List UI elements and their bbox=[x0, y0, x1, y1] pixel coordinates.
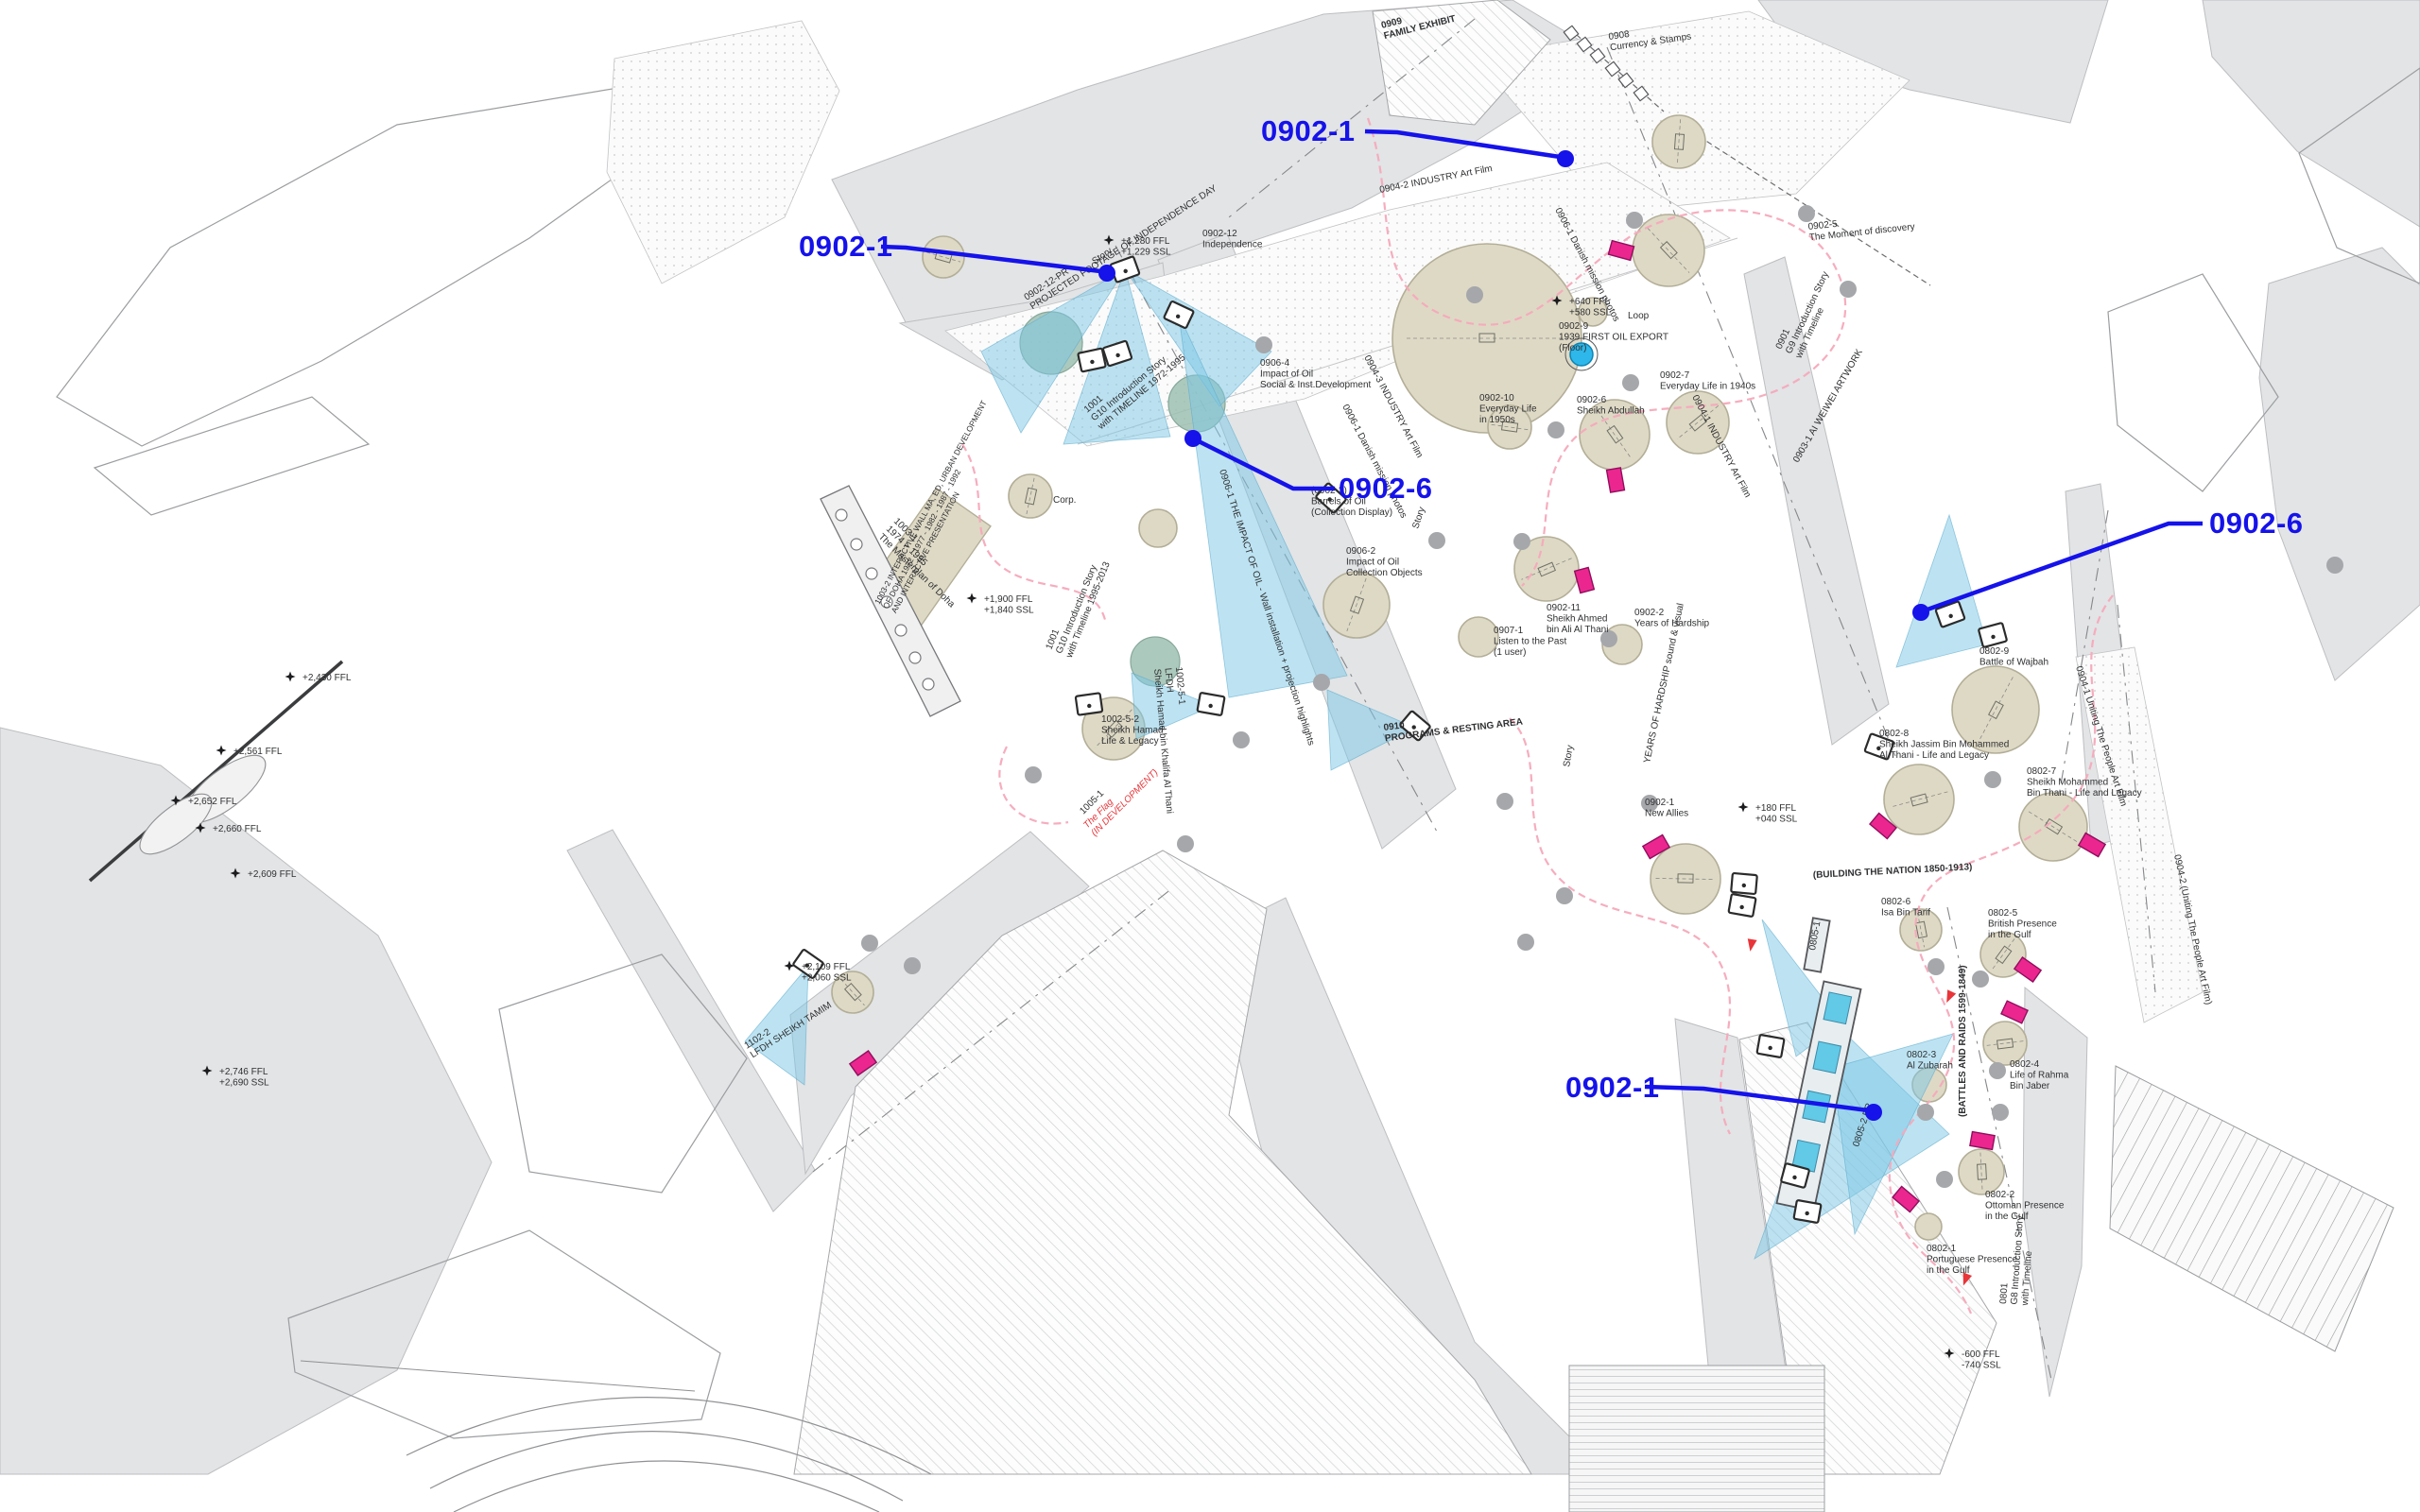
column-dot bbox=[1313, 674, 1330, 691]
building-masses bbox=[0, 0, 2420, 1512]
plan-label: +2,746 FFL+2,690 SSL bbox=[219, 1067, 269, 1089]
marker-magenta bbox=[2001, 1001, 2028, 1023]
wall-knob bbox=[851, 539, 862, 550]
column-dot bbox=[1025, 766, 1042, 783]
visitor-flow-path bbox=[999, 747, 1068, 824]
building-mass-lines bbox=[1569, 1366, 1824, 1512]
projector-icon bbox=[1979, 623, 2007, 647]
plan-label: (BATTLES AND RAIDS 1599-1849) bbox=[1958, 965, 1968, 1117]
building-mass-solid bbox=[2203, 0, 2420, 227]
column-dot bbox=[1513, 533, 1530, 550]
plan-label: (BUILDING THE NATION 1850-1913) bbox=[1813, 862, 1973, 881]
exhibit-circle bbox=[1009, 474, 1052, 518]
plan-label: +1,280 FFL+1,229 SSL bbox=[1121, 236, 1171, 258]
building-mass-stairs bbox=[2110, 1066, 2394, 1351]
column-dot bbox=[1466, 286, 1483, 303]
plan-label: -600 FFL-740 SSL bbox=[1962, 1349, 2001, 1371]
plan-label: Story bbox=[1410, 506, 1427, 530]
column-dot bbox=[1626, 212, 1643, 229]
plan-label: 0802-9Battle of Wajbah bbox=[1979, 646, 2048, 668]
elevation-star-icon bbox=[285, 672, 296, 682]
callout-dot bbox=[1912, 604, 1929, 621]
plan-label: +2,609 FFL bbox=[248, 869, 297, 880]
plan-label: Corp. bbox=[1053, 495, 1076, 506]
exhibit-circle bbox=[1139, 509, 1177, 547]
plan-stage: 0909FAMILY EXHIBIT0908Currency & Stamps0… bbox=[0, 0, 2420, 1512]
callout-dot bbox=[1184, 430, 1201, 447]
plan-label: 0902-11Sheikh Ahmedbin Ali Al Thani bbox=[1547, 603, 1608, 635]
callout-label[interactable]: 0902-1 bbox=[799, 230, 893, 263]
callout-leader bbox=[1925, 524, 2203, 610]
column-dot bbox=[1428, 532, 1445, 549]
elevation-star-icon bbox=[785, 961, 795, 971]
plan-label: +2,652 FFL bbox=[188, 797, 237, 807]
column-dot bbox=[1917, 1104, 1934, 1121]
plan-label: Loop bbox=[1628, 311, 1650, 321]
projector-icon bbox=[1793, 1200, 1821, 1223]
callout-label[interactable]: 0902-1 bbox=[1261, 114, 1356, 147]
building-mass-solid bbox=[2259, 248, 2420, 680]
plan-label: 0902-7Everyday Life in 1940s bbox=[1660, 370, 1755, 392]
building-mass-outline bbox=[57, 87, 662, 446]
column-dot bbox=[2326, 557, 2343, 574]
flow-direction-arrow bbox=[1746, 938, 1757, 953]
plan-label: 0906-2Impact of OilCollection Objects bbox=[1346, 546, 1423, 578]
column-dot bbox=[1798, 205, 1815, 222]
wall-knob bbox=[895, 625, 907, 636]
wall-knob bbox=[866, 568, 877, 579]
plan-label: 0902-6Sheikh Abdullah bbox=[1577, 395, 1645, 417]
plan-label: 0902-1New Allies bbox=[1645, 798, 1688, 819]
exhibit-circle bbox=[1459, 617, 1498, 657]
column-dot bbox=[1927, 958, 1945, 975]
plan-label: 1002-5-1LFDHSheikh Hamad bin Khalifa Al … bbox=[1151, 666, 1196, 814]
exhibit-circle bbox=[923, 236, 964, 278]
plan-label: +2,561 FFL bbox=[233, 747, 283, 757]
callout-dot bbox=[1865, 1104, 1882, 1121]
projector-icon bbox=[1078, 349, 1106, 372]
callout-dot bbox=[1557, 150, 1574, 167]
building-mass-outline bbox=[2108, 274, 2278, 491]
projector-icon bbox=[1756, 1035, 1784, 1057]
column-dot bbox=[904, 957, 921, 974]
wall-knob bbox=[909, 652, 921, 663]
projector-icon bbox=[1731, 873, 1757, 894]
column-dot bbox=[1177, 835, 1194, 852]
plan-label: +2,430 FFL bbox=[302, 673, 352, 683]
callout-dot bbox=[1098, 265, 1115, 282]
exhibit-circle bbox=[1959, 1149, 2004, 1194]
projector-icon bbox=[1728, 894, 1755, 917]
column-dot bbox=[1840, 281, 1857, 298]
plan-label: +2,660 FFL bbox=[213, 824, 262, 834]
building-mass-solid bbox=[2023, 988, 2087, 1397]
column-dot bbox=[1936, 1171, 1953, 1188]
column-dot bbox=[861, 935, 878, 952]
building-mass-outline bbox=[95, 397, 369, 515]
elevation-star-icon bbox=[1738, 802, 1749, 813]
column-dot bbox=[1622, 374, 1639, 391]
projector-icon bbox=[1076, 693, 1103, 714]
column-dot bbox=[1972, 971, 1989, 988]
wall-knob bbox=[836, 509, 847, 521]
projector-icon bbox=[1197, 693, 1224, 715]
exhibit-circle bbox=[1633, 215, 1704, 286]
marker-magenta bbox=[1970, 1132, 1995, 1150]
plan-label: 0802-1Portuguese Presencein the Gulf bbox=[1927, 1244, 2018, 1276]
plan-label: 0802-3Al Zubarah bbox=[1907, 1050, 1953, 1072]
column-dot bbox=[1556, 887, 1573, 904]
column-dot bbox=[1992, 1104, 2009, 1121]
plan-label: +180 FFL+040 SSL bbox=[1755, 803, 1798, 825]
column-dot bbox=[1233, 731, 1250, 748]
plan-label: 0902-5The Moment of discovery bbox=[1807, 211, 1915, 243]
plan-label: 0802-5British Presencein the Gulf bbox=[1988, 908, 2057, 940]
plan-label: Story bbox=[1562, 745, 1576, 768]
plan-label: 0802-6Isa Bin Tarif bbox=[1881, 897, 1930, 919]
plan-label: 1001G10 Introduction Storywith Timeline … bbox=[1044, 552, 1113, 661]
plan-label: 0902-91939 FIRST OIL EXPORT(Floor) bbox=[1559, 321, 1668, 353]
column-dot bbox=[1547, 421, 1564, 438]
callout-label[interactable]: 0902-6 bbox=[2209, 507, 2304, 540]
column-dot bbox=[1984, 771, 2001, 788]
marker-magenta bbox=[1607, 468, 1625, 492]
plan-label: +2,109 FFL+2,060 SSL bbox=[802, 962, 852, 984]
column-dot bbox=[1989, 1062, 2006, 1079]
exhibition-plan-canvas: 0909FAMILY EXHIBIT0908Currency & Stamps0… bbox=[0, 0, 2420, 1512]
marker-magenta bbox=[1575, 567, 1595, 593]
callout-label[interactable]: 0902-1 bbox=[1565, 1071, 1660, 1104]
elevation-star-icon bbox=[216, 746, 227, 756]
plan-label: +1,900 FFL+1,840 SSL bbox=[984, 594, 1034, 616]
building-mass-solid bbox=[0, 728, 492, 1474]
callout-label[interactable]: 0902-6 bbox=[1339, 472, 1433, 505]
elevation-star-icon bbox=[967, 593, 977, 604]
exhibit-circle bbox=[1915, 1213, 1942, 1240]
column-dot bbox=[1496, 793, 1513, 810]
column-dot bbox=[1517, 934, 1534, 951]
wall-knob bbox=[923, 679, 934, 690]
column-dot bbox=[1255, 336, 1272, 353]
